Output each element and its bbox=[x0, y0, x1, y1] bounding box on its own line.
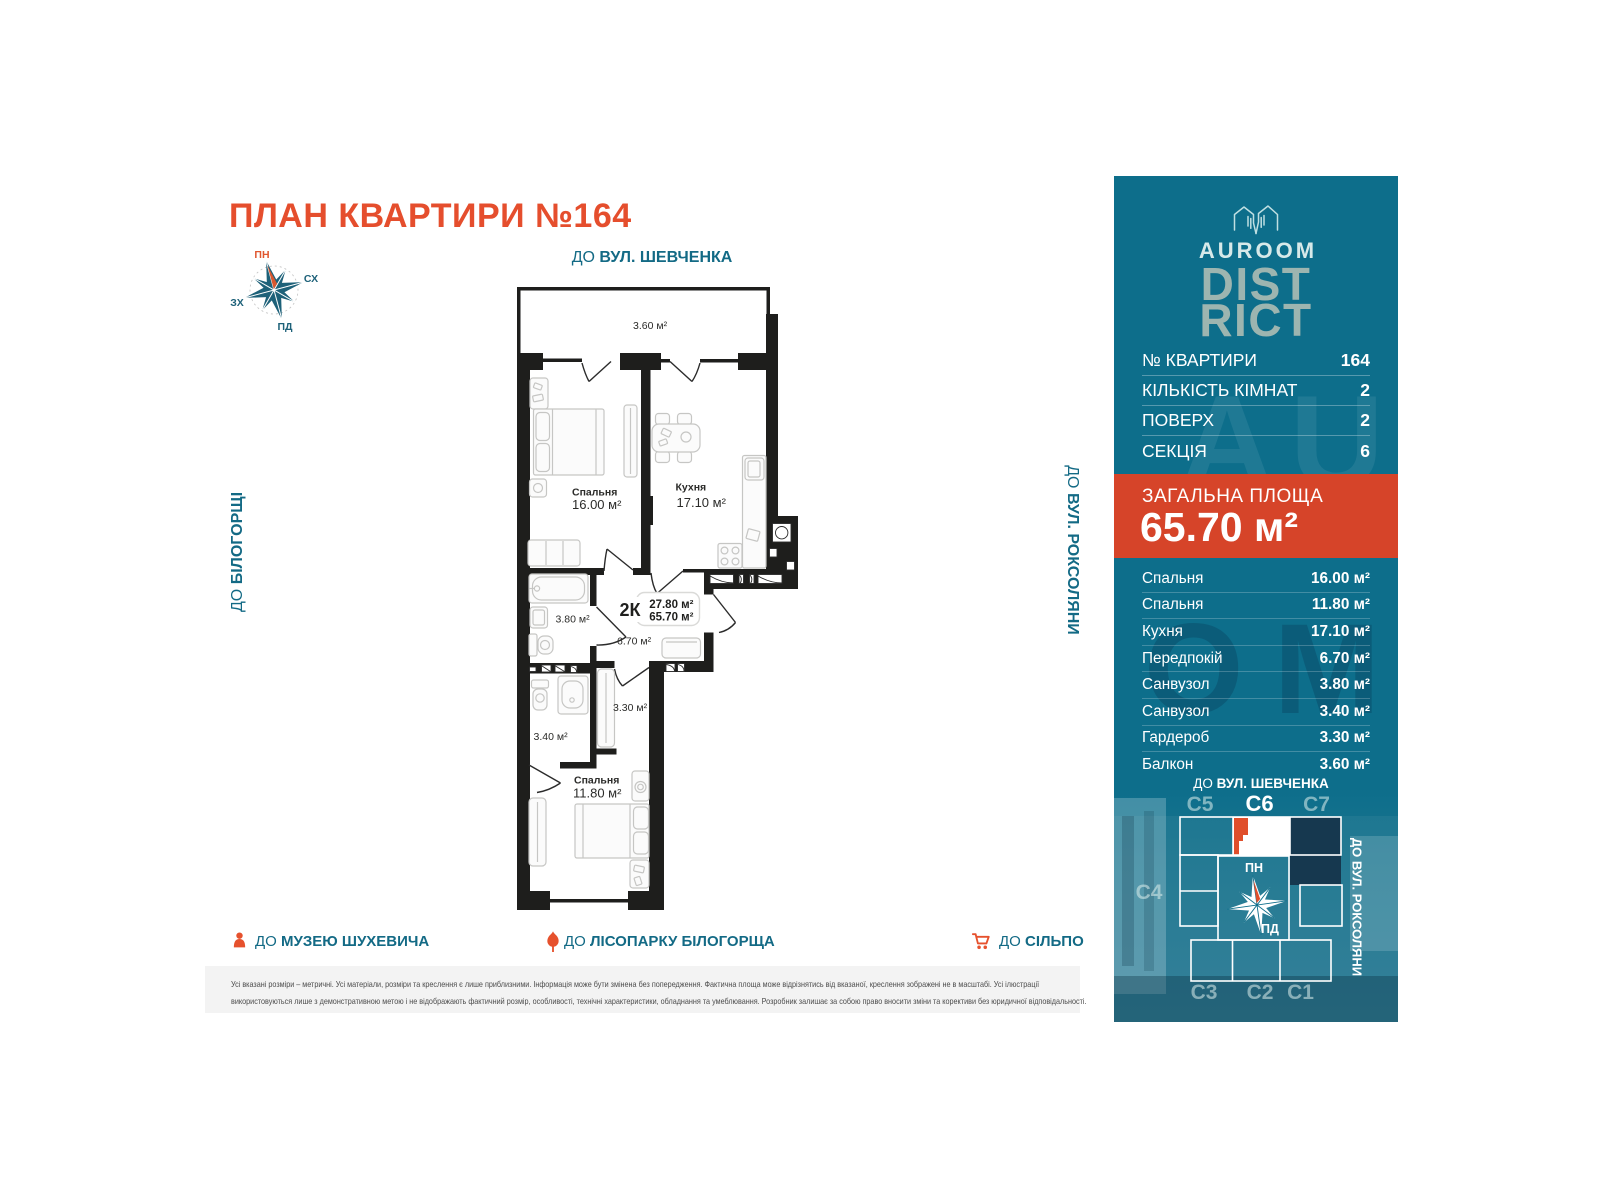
svg-text:3.30 м²: 3.30 м² bbox=[613, 702, 648, 714]
svg-text:17.10 м²: 17.10 м² bbox=[677, 495, 727, 510]
svg-text:11.80 м²: 11.80 м² bbox=[573, 786, 622, 801]
svg-text:2К: 2К bbox=[620, 600, 642, 620]
svg-text:Кухня: Кухня bbox=[676, 482, 707, 494]
svg-text:3.40 м²: 3.40 м² bbox=[534, 731, 569, 743]
svg-text:3.60 м²: 3.60 м² bbox=[633, 320, 668, 332]
svg-text:27.80 м²: 27.80 м² bbox=[649, 599, 693, 611]
svg-text:6.70 м²: 6.70 м² bbox=[617, 636, 652, 648]
svg-text:65.70 м²: 65.70 м² bbox=[649, 612, 693, 624]
svg-text:3.80 м²: 3.80 м² bbox=[556, 614, 591, 626]
svg-text:16.00 м²: 16.00 м² bbox=[572, 497, 622, 512]
